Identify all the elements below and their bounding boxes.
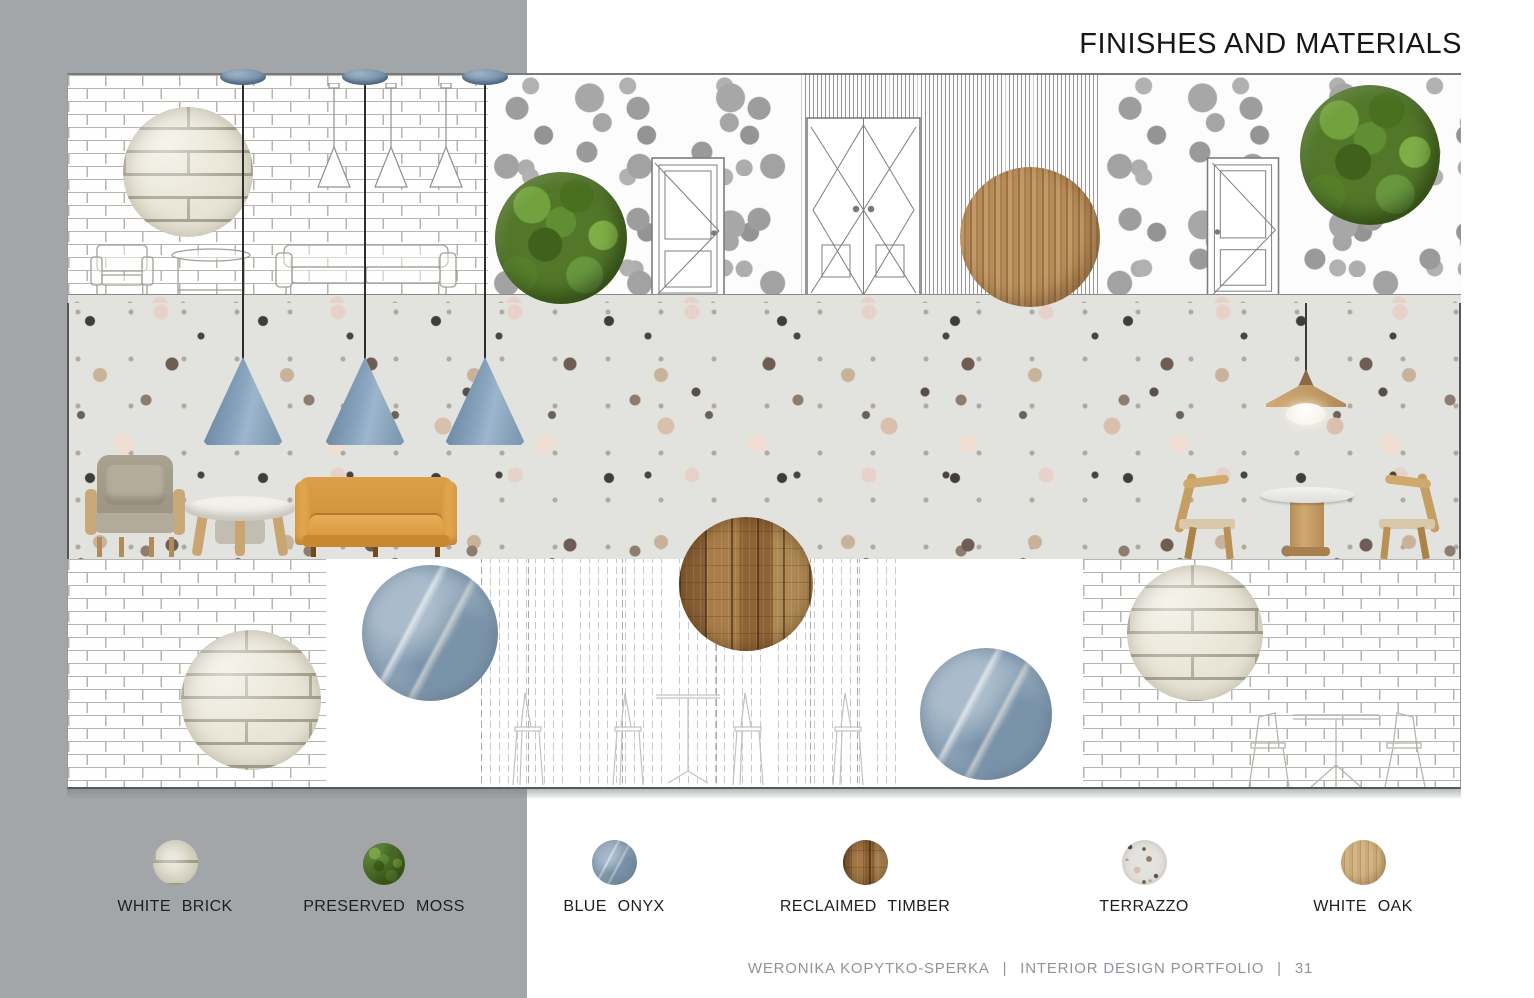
cafe-chairs-sketch [481,687,904,789]
material-swatch-white-oak [1341,840,1386,885]
footer-portfolio: INTERIOR DESIGN PORTFOLIO [1020,960,1264,977]
white-brick-sample-circle [1127,565,1263,701]
page-title: FINISHES AND MATERIALS [1079,28,1462,61]
footer-divider: | [1003,960,1008,977]
legend-item: PRESERVED MOSS [274,843,494,916]
floor-strip [68,294,1461,303]
portfolio-page: FINISHES AND MATERIALS [0,0,1534,998]
board-shadow [67,789,1461,798]
pendant-canopy [462,69,508,85]
preserved-moss-sample-circle [1300,85,1440,225]
white-brick-sample-circle [181,630,321,770]
material-swatch-terrazzo [1122,840,1167,885]
legend-label: WHITE BRICK [117,898,232,916]
white-brick-sample-circle [123,107,253,237]
door-sketch [651,157,725,303]
footer-author: WERONIKA KOPYTKO-SPERKA [748,960,990,977]
legend-label: BLUE ONYX [563,898,664,916]
wood-slat-sample-circle [960,167,1100,307]
legend-item: WHITE BRICK [65,840,285,916]
dining-table [1260,487,1354,557]
door-sketch [1206,157,1280,303]
pendant-cable [484,81,486,359]
bistro-set-sketch [1231,699,1441,789]
dining-chair [1373,471,1439,559]
legend-label: TERRAZZO [1099,898,1188,916]
blue-onyx-sample-circle [362,565,498,701]
elevation-band-top [67,73,1461,303]
sofa-sketch [274,243,458,301]
lounge-armchair [85,455,185,558]
blue-onyx-sample-circle [920,648,1052,780]
footer-page-number: 31 [1295,960,1313,977]
footer-divider: | [1277,960,1282,977]
coffee-table [185,490,295,558]
material-swatch-white-brick [153,840,198,885]
materials-collage-board [67,73,1461,789]
legend-label: RECLAIMED TIMBER [780,898,950,916]
legend-item: RECLAIMED TIMBER [755,840,975,916]
pendant-sketch [374,83,408,193]
legend-item: BLUE ONYX [504,840,724,916]
pendant-cable [242,81,244,359]
preserved-moss-sample-circle [495,172,627,304]
legend-item: TERRAZZO [1034,840,1254,916]
pendant-canopy [220,69,266,85]
reclaimed-timber-sample-circle [679,517,813,651]
pendant-sketch [429,83,463,193]
leather-sofa [295,477,457,558]
legend-item: WHITE OAK [1253,840,1473,916]
pendant-cable [364,81,366,359]
pendant-sketch [317,83,351,193]
footer: WERONIKA KOPYTKO-SPERKA | INTERIOR DESIG… [527,960,1534,977]
double-door-sketch [806,117,921,303]
material-swatch-reclaimed-timber [843,840,888,885]
armchair-sketch [89,243,155,301]
material-swatch-preserved-moss [363,843,405,885]
legend-label: WHITE OAK [1313,898,1412,916]
pendant-canopy [342,69,388,85]
dining-chair [1175,471,1241,559]
material-swatch-blue-onyx [592,840,637,885]
wood-pendant-lamp [1266,303,1346,427]
legend-label: PRESERVED MOSS [303,898,465,916]
